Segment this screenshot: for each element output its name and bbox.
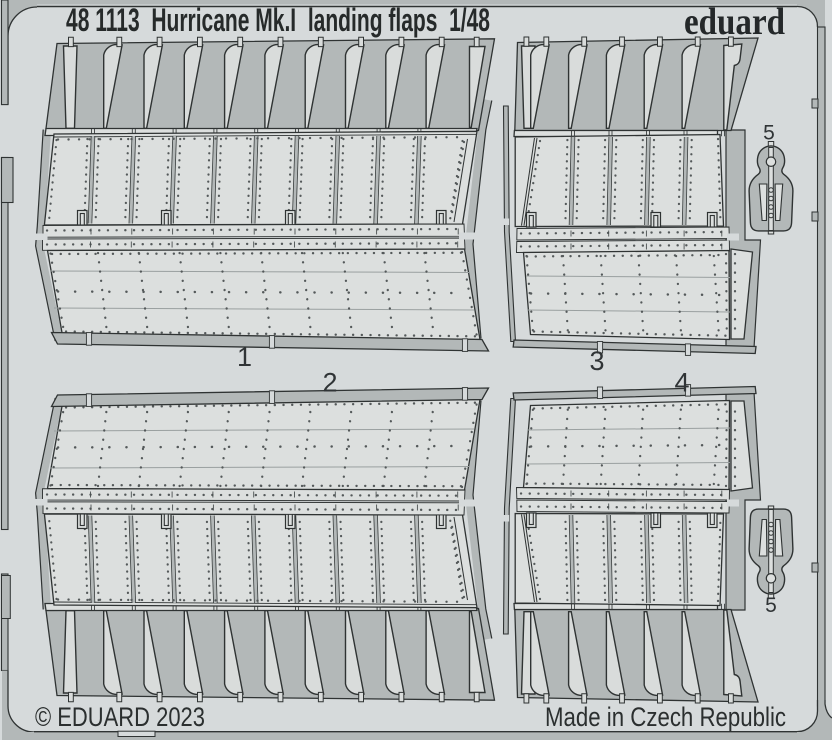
svg-text:eduard: eduard [684, 1, 785, 43]
svg-text:1: 1 [237, 342, 252, 372]
svg-text:48 1113 Hurricane Mk.I landi: 48 1113 Hurricane Mk.I landing flaps 1/4… [66, 2, 490, 38]
svg-text:4: 4 [674, 368, 689, 398]
svg-text:2: 2 [322, 368, 337, 398]
svg-text:© EDUARD 2023: © EDUARD 2023 [35, 702, 205, 732]
svg-text:Made in Czech Republic: Made in Czech Republic [545, 702, 786, 732]
svg-text:5: 5 [763, 122, 775, 145]
svg-text:5: 5 [765, 594, 777, 617]
svg-text:3: 3 [589, 346, 604, 376]
